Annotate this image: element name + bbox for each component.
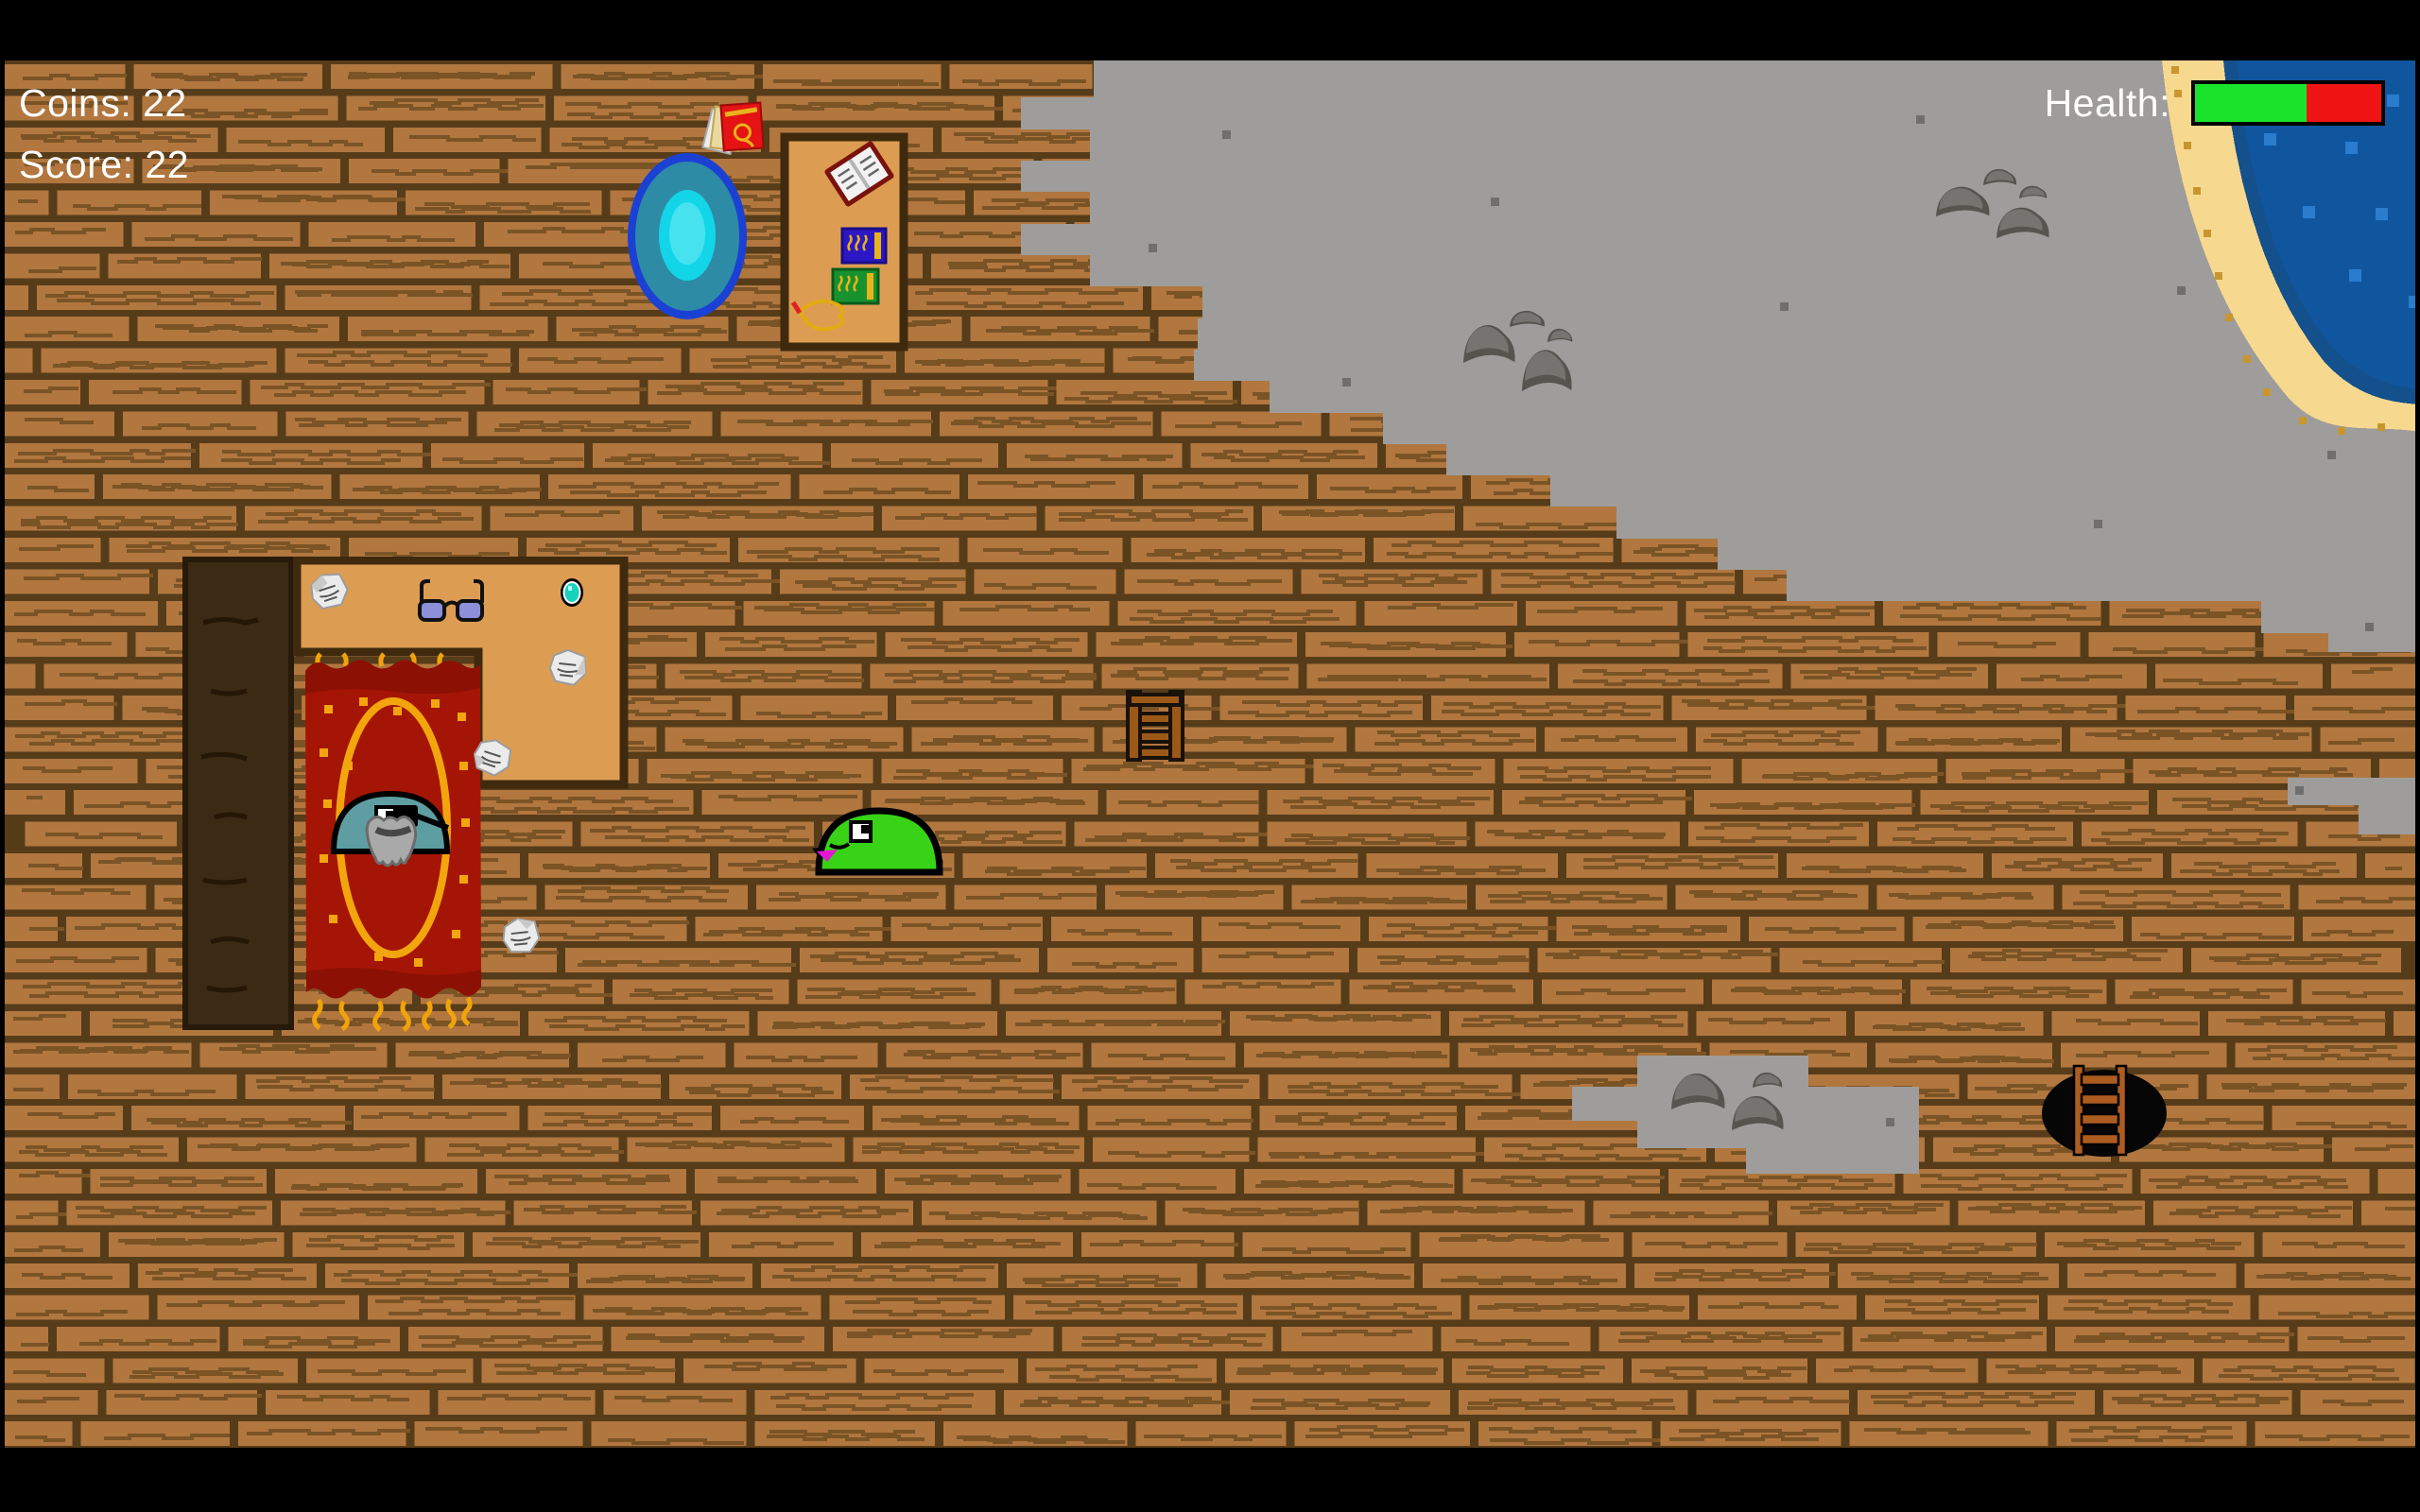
game-stage: Coins: 22 Score: 22 Health: [0,0,2420,1512]
floor-ladder[interactable] [1121,687,1189,765]
desk-table [780,132,908,352]
score-label: Score: [19,143,134,186]
glasses[interactable] [414,575,490,629]
hole-ladder[interactable] [2036,1060,2172,1160]
coins-counter: Coins: 22 [19,81,187,126]
portal[interactable] [623,150,752,322]
green-book[interactable] [833,269,878,303]
blue-book[interactable] [842,229,886,263]
health-bar [2191,80,2385,126]
carpet-top-tassels [318,654,442,666]
paper-4[interactable] [497,913,544,959]
carpet-bottom-tassels [315,998,470,1030]
health-label: Health: [2004,81,2170,126]
bookshelf [182,557,294,1030]
player-slime[interactable] [811,799,947,883]
red-book[interactable] [700,94,775,161]
coins-label: Coins: [19,81,131,125]
coins-value: 22 [143,81,187,125]
score-value: 22 [145,143,189,186]
health-bar-depleted [2307,84,2381,122]
gem[interactable] [558,575,586,610]
health-bar-fill [2195,84,2307,122]
wizard-beard [367,816,415,866]
wizard-npc[interactable] [327,784,459,875]
score-counter: Score: 22 [19,143,189,187]
paper-2[interactable] [544,644,592,691]
